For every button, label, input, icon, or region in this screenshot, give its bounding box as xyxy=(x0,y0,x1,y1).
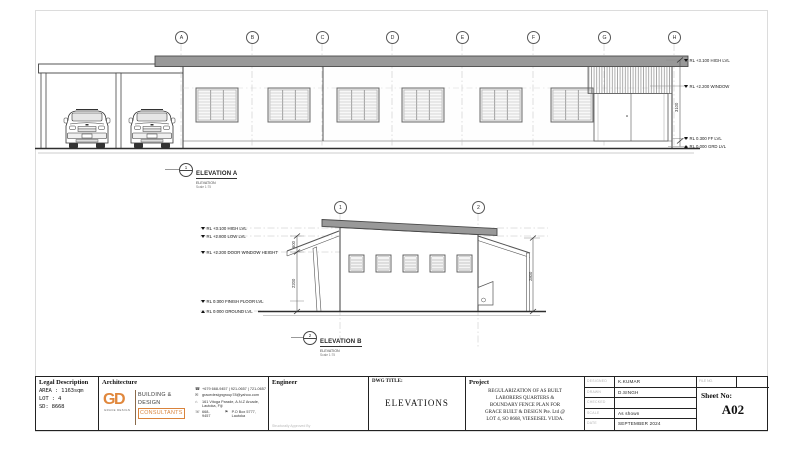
level-text: RL 0.300 FF LVL xyxy=(690,136,722,141)
grid-bubble-f: F xyxy=(527,31,540,44)
sheet-no-label: Sheet No: xyxy=(697,388,769,400)
meta-value-scale: As shown xyxy=(615,409,696,419)
level-text: RL 0.000 GROUND LVL xyxy=(207,309,253,314)
meta-value-checked xyxy=(615,398,696,408)
title-block: Legal Description AREA : 1163sqm LOT : 4… xyxy=(35,376,768,431)
location-icon: ⌂ xyxy=(195,400,200,404)
project-line-1: REGULARIZATION OF AS BUILT xyxy=(468,388,582,395)
project-description: REGULARIZATION OF AS BUILT LABORERS QUAR… xyxy=(468,388,582,423)
dwg-title-cell: DWG TITLE: ELEVATIONS xyxy=(369,377,466,430)
level-text: RL +2.200 WINDOW xyxy=(690,84,730,89)
grid-bubble-2-label: 2 xyxy=(477,205,480,211)
dwg-title-header: DWG TITLE: xyxy=(369,377,465,384)
grid-bubble-e-label: E xyxy=(461,35,464,41)
grid-bubble-2: 2 xyxy=(472,201,485,214)
meta-label-scale: SCALE xyxy=(585,409,615,419)
engineer-approved-by: Structurally Approved By xyxy=(272,424,310,428)
level-marker-icon xyxy=(201,310,205,313)
dimension-label: 2200 xyxy=(291,279,296,288)
fax-icon: ☏ xyxy=(195,410,200,414)
meta-row-scale: SCALE As shown xyxy=(585,409,696,420)
firm-name: BUILDING & DESIGN CONSULTANTS xyxy=(138,391,185,419)
grid-bubble-b: B xyxy=(246,31,259,44)
level-text: RL +2.800 LOW LVL xyxy=(207,234,246,239)
legal-description-header: Legal Description xyxy=(36,377,98,386)
phone-icon: ☎ xyxy=(195,387,200,391)
architecture-header: Architecture xyxy=(99,377,268,386)
elevation-a-scale: Scale 1:75 xyxy=(196,185,237,189)
level-marker-icon xyxy=(684,59,688,62)
project-line-3: BOUNDARY FENCE PLAN FOR xyxy=(468,402,582,409)
level-annotation: RL 0.300 FF LVL xyxy=(684,136,722,141)
level-marker-icon xyxy=(201,300,205,303)
elevation-b-title: ELEVATION B xyxy=(320,339,362,347)
elevation-b-marker: 2 xyxy=(303,331,317,345)
contact-phone: ☎ +679 668-9457 | 921-0657 | 721-0657 xyxy=(195,387,267,391)
legal-description-cell: Legal Description AREA : 1163sqm LOT : 4… xyxy=(36,377,99,430)
meta-grid-cell: DESIGNED K.KUMAR DRAWN D.SINGH CHECKED S… xyxy=(585,377,697,430)
mailbox-icon: ⚑ xyxy=(225,410,230,414)
dimension-label: 2800 xyxy=(528,272,533,281)
marker-divider xyxy=(180,170,192,171)
level-marker-icon xyxy=(201,251,205,254)
firm-contacts: ☎ +679 668-9457 | 921-0657 | 721-0657 ✉ … xyxy=(195,387,267,420)
level-marker-icon xyxy=(684,145,688,148)
contact-phone-text: +679 668-9457 | 921-0657 | 721-0657 xyxy=(202,387,266,391)
project-line-2: LABORERS QUARTERS & xyxy=(468,395,582,402)
meta-row-designed: DESIGNED K.KUMAR xyxy=(585,377,696,388)
elevation-b-label: ELEVATION B ELEVATION Scale 1:75 xyxy=(320,330,362,357)
meta-value-designed: K.KUMAR xyxy=(615,377,696,387)
meta-label-drawn: DRAWN xyxy=(585,388,615,398)
meta-row-drawn: DRAWN D.SINGH xyxy=(585,388,696,399)
address-line-2: Lautoka, Fiji xyxy=(202,404,222,408)
elevation-b-scale: Scale 1:75 xyxy=(320,353,362,357)
contact-pobox-text: P.O Box 5777, Lautoka xyxy=(232,410,267,418)
email-icon: ✉ xyxy=(195,393,200,397)
grid-bubble-b-label: B xyxy=(251,35,254,41)
elevation-a-title: ELEVATION A xyxy=(196,171,237,179)
level-marker-icon xyxy=(684,137,688,140)
level-text: RL +2.200 DOOR WINDOW HEIGHT xyxy=(207,250,278,255)
meta-value-date: SEPTEMBER 2024 xyxy=(615,419,696,430)
file-no-label: FILE NO. xyxy=(697,377,737,387)
level-annotation: RL 0.000 GROUND LVL xyxy=(201,309,253,314)
level-marker-icon xyxy=(684,85,688,88)
marker-number: 1 xyxy=(180,165,192,170)
elevation-b-drawing xyxy=(200,214,548,348)
marker-divider xyxy=(304,338,316,339)
level-annotation: RL 0.300 FINISH FLOOR LVL xyxy=(201,299,264,304)
grid-bubble-a-label: A xyxy=(180,35,183,41)
marker-number: 2 xyxy=(304,333,316,338)
contact-email: ✉ gracedesigngroup78@yahoo.com xyxy=(195,393,267,397)
level-annotation: RL +3.100 HIGH LVL xyxy=(684,58,730,63)
grid-bubble-d: D xyxy=(386,31,399,44)
dimension-label: 3100 xyxy=(674,103,679,112)
suv-vehicle-1 xyxy=(64,110,110,149)
meta-value-drawn: D.SINGH xyxy=(615,388,696,398)
level-annotation: RL +2.800 LOW LVL xyxy=(201,234,246,239)
firm-line-3: CONSULTANTS xyxy=(138,408,185,418)
firm-logo: GD xyxy=(103,392,124,408)
grid-bubble-1: 1 xyxy=(334,201,347,214)
firm-logo-subtext: GRACE DESIGN xyxy=(104,408,130,412)
contact-email-text: gracedesigngroup78@yahoo.com xyxy=(202,393,259,397)
elevation-a-marker: 1 xyxy=(179,163,193,177)
dwg-title-text: ELEVATIONS xyxy=(369,398,465,408)
contact-fax-pobox: ☏ 668-9457 ⚑ P.O Box 5777, Lautoka xyxy=(195,410,267,418)
level-text: RL +3.100 HIGH LVL xyxy=(690,58,730,63)
level-marker-icon xyxy=(201,235,205,238)
grid-bubble-a: A xyxy=(175,31,188,44)
file-no-row: FILE NO. xyxy=(697,377,769,388)
grid-bubble-1-label: 1 xyxy=(339,205,342,211)
level-text: RL 0.000 GRD LVL xyxy=(690,144,727,149)
project-line-4: GRACE BUILT & DESIGN Pte. Ltd @ xyxy=(468,409,582,416)
grid-bubble-f-label: F xyxy=(532,35,535,41)
project-header: Project xyxy=(466,377,584,386)
contact-fax-text: 668-9457 xyxy=(202,410,217,418)
project-line-5: LOT 4, SO 8668, VIESEISEL VUDA. xyxy=(468,416,582,423)
firm-line-2: DESIGN xyxy=(138,399,185,407)
engineer-header: Engineer xyxy=(269,377,368,386)
grid-bubble-g: G xyxy=(598,31,611,44)
grid-bubble-c-label: C xyxy=(321,35,325,41)
engineer-cell: Engineer Structurally Approved By xyxy=(269,377,369,430)
contact-address-text: 161 Vitoga Parade, A.N.Z Arcade, Lautoka… xyxy=(202,400,259,408)
logo-divider xyxy=(135,390,136,425)
meta-row-checked: CHECKED xyxy=(585,398,696,409)
level-annotation: RL +2.200 DOOR WINDOW HEIGHT xyxy=(201,250,278,255)
level-annotation: RL +3.100 HIGH LVL xyxy=(201,226,247,231)
sheet-no-value: A02 xyxy=(697,402,769,418)
grid-bubble-c: C xyxy=(316,31,329,44)
level-annotation: RL +2.200 WINDOW xyxy=(684,84,729,89)
suv-vehicle-2 xyxy=(129,110,175,149)
sheet-number-cell: FILE NO. Sheet No: A02 xyxy=(697,377,769,430)
drawing-sheet: A B C D E F G H 1 2 RL +3.100 HIGH LVL R… xyxy=(0,0,800,450)
dimension-label: 600 xyxy=(291,241,296,248)
elevation-a-label: ELEVATION A ELEVATION Scale 1:75 xyxy=(196,162,237,189)
firm-line-1: BUILDING & xyxy=(138,391,185,399)
meta-label-date: DATE xyxy=(585,419,615,430)
legal-lot: LOT : 4 xyxy=(36,396,98,402)
grid-bubble-d-label: D xyxy=(391,35,395,41)
meta-row-date: DATE SEPTEMBER 2024 xyxy=(585,419,696,430)
level-annotation: RL 0.000 GRD LVL xyxy=(684,144,726,149)
elevation-a-drawing xyxy=(35,44,700,170)
architecture-cell: Architecture GD GRACE DESIGN BUILDING & … xyxy=(99,377,269,430)
level-marker-icon xyxy=(201,227,205,230)
grid-bubble-g-label: G xyxy=(602,35,606,41)
contact-address: ⌂ 161 Vitoga Parade, A.N.Z Arcade, Lauto… xyxy=(195,400,267,408)
legal-sd: SD: 8668 xyxy=(36,404,98,410)
meta-label-checked: CHECKED xyxy=(585,398,615,408)
level-text: RL +3.100 HIGH LVL xyxy=(207,226,247,231)
grid-bubble-h-label: H xyxy=(673,35,677,41)
grid-bubble-h: H xyxy=(668,31,681,44)
level-text: RL 0.300 FINISH FLOOR LVL xyxy=(207,299,264,304)
meta-label-designed: DESIGNED xyxy=(585,377,615,387)
project-cell: Project REGULARIZATION OF AS BUILT LABOR… xyxy=(466,377,585,430)
grid-bubble-e: E xyxy=(456,31,469,44)
legal-area: AREA : 1163sqm xyxy=(36,388,98,394)
